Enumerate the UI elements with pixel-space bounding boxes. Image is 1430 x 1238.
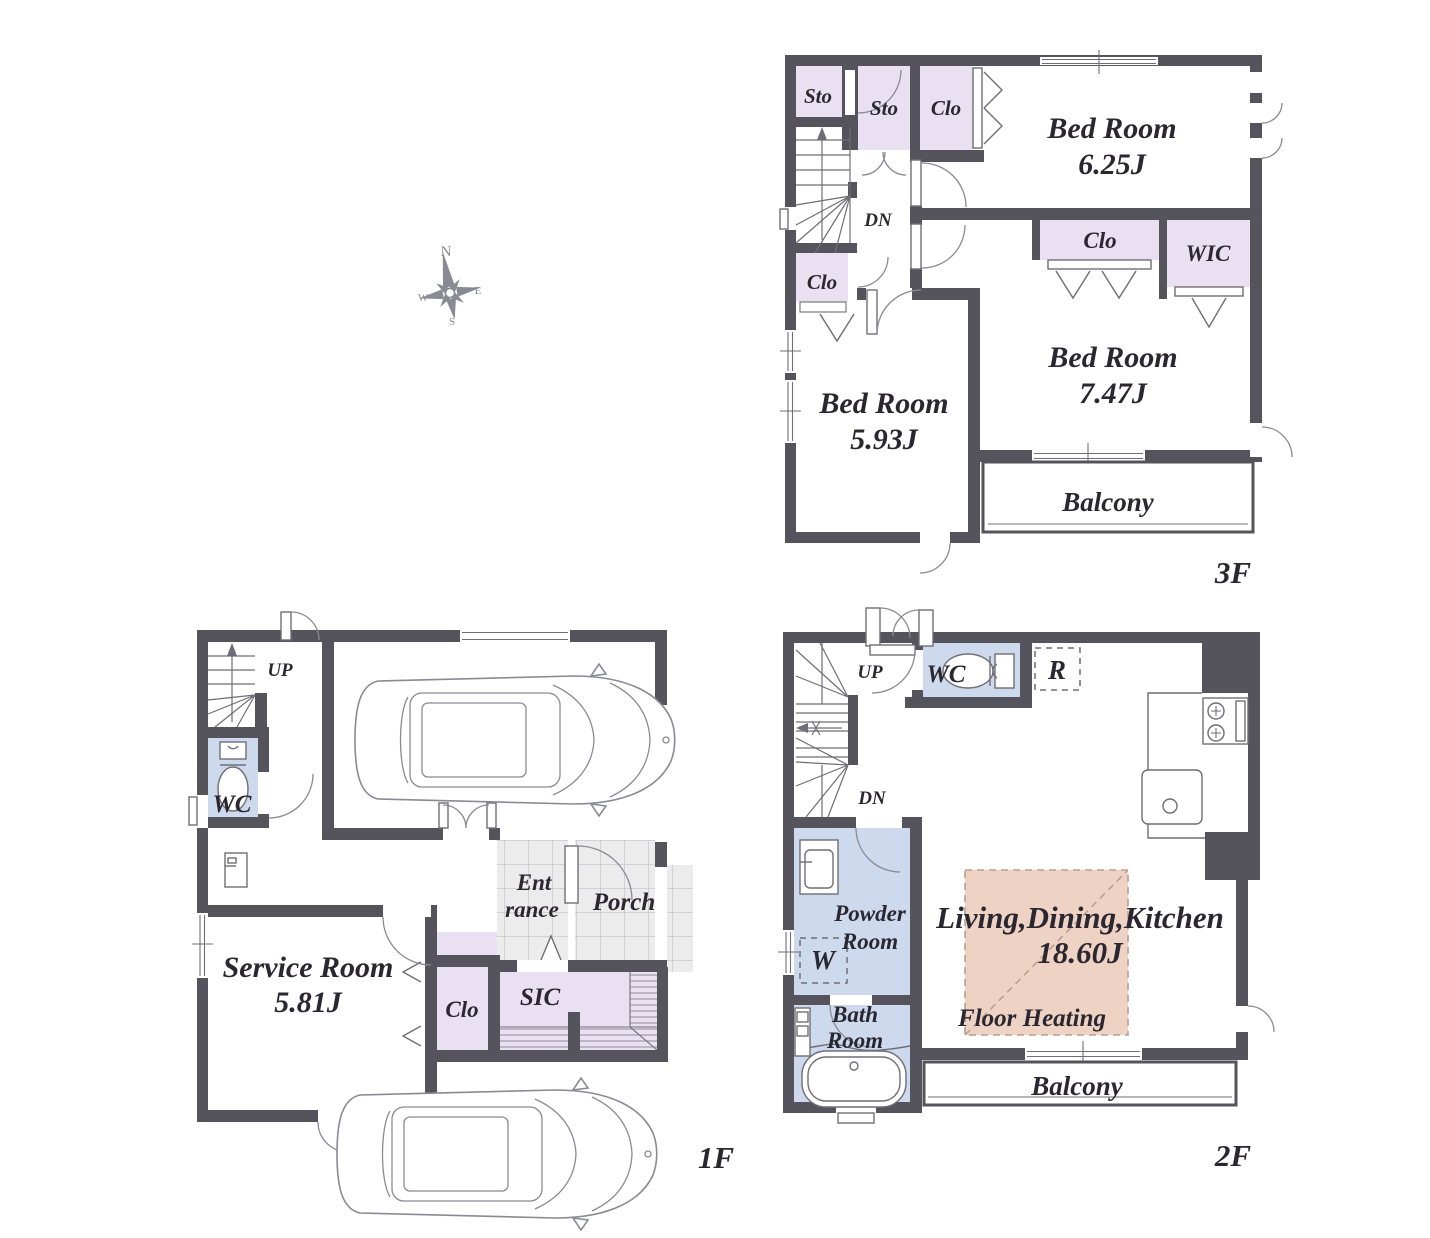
balcony-label-3f: Balcony — [1061, 487, 1155, 517]
car-icon — [337, 1078, 657, 1230]
room-label-powder-2: Room — [841, 929, 898, 954]
washbasin-icon — [800, 840, 838, 894]
room-label-wc-1f: WC — [213, 791, 252, 818]
hall-floor-strip — [437, 932, 497, 955]
compass-north-label: N — [441, 244, 452, 260]
room-area-service: 5.81J — [274, 986, 343, 1019]
balcony-label-2f: Balcony — [1030, 1071, 1124, 1101]
room-label-wc-2f: WC — [927, 661, 966, 688]
floor-plan-canvas: N E S W — [0, 0, 1430, 1238]
room-area-bedroom-c: 7.47J — [1079, 377, 1148, 410]
room-label-sto-a: Sto — [804, 84, 832, 108]
room-label-clo-c: Clo — [807, 270, 837, 294]
floor-plan-3f: Sto Sto Clo Bed Room 6.25J DN Clo WIC Cl… — [780, 50, 1292, 590]
room-label-sic: SIC — [520, 984, 561, 1011]
room-area-ldk: 18.60J — [1037, 935, 1124, 970]
compass-east-label: E — [475, 285, 482, 297]
room-label-bath-2: Room — [826, 1028, 883, 1053]
floor-label-3f: 3F — [1214, 555, 1252, 590]
room-label-entrance-2: rance — [505, 897, 559, 922]
room-label-bedroom-a: Bed Room — [1046, 112, 1176, 145]
car-icon — [355, 664, 675, 816]
room-label-clo-1f: Clo — [445, 997, 478, 1022]
room-area-bedroom-b: 5.93J — [850, 423, 919, 456]
room-label-wic: WIC — [1186, 241, 1231, 266]
refrigerator-label: R — [1047, 655, 1066, 685]
room-label-service: Service Room — [223, 951, 394, 984]
room-area-bedroom-a: 6.25J — [1078, 148, 1147, 181]
floor-label-1f: 1F — [698, 1140, 735, 1175]
compass-south-label: S — [449, 316, 455, 328]
floor-heating-label: Floor Heating — [957, 1005, 1106, 1032]
stairs-dn-label-2f: DN — [857, 788, 887, 809]
room-label-entrance-1: Ent — [516, 870, 552, 895]
floor-plan-sheet: N E S W — [0, 0, 1430, 1238]
floor-label-2f: 2F — [1214, 1138, 1252, 1173]
stairs-up-label-2f: UP — [857, 662, 883, 683]
room-label-clo-b: Clo — [1083, 228, 1116, 253]
room-label-bedroom-b: Bed Room — [818, 387, 948, 420]
compass-west-label: W — [418, 292, 429, 304]
room-label-bedroom-c: Bed Room — [1047, 341, 1177, 374]
stairs-dn-label-3f: DN — [863, 210, 893, 231]
washer-label: W — [811, 945, 837, 975]
room-label-porch: Porch — [592, 889, 656, 916]
kitchen-sink-icon — [1142, 770, 1202, 824]
room-label-powder-1: Powder — [833, 901, 907, 926]
stairs-up-label-1f: UP — [267, 660, 293, 681]
room-label-clo-a: Clo — [931, 96, 961, 120]
room-label-bath-1: Bath — [831, 1002, 878, 1027]
floor-plan-2f: UP DN WC R Powder Room W Bath Room Livin… — [778, 608, 1274, 1173]
room-label-sto-b: Sto — [870, 96, 898, 120]
room-label-ldk: Living,Dining,Kitchen — [935, 900, 1224, 935]
